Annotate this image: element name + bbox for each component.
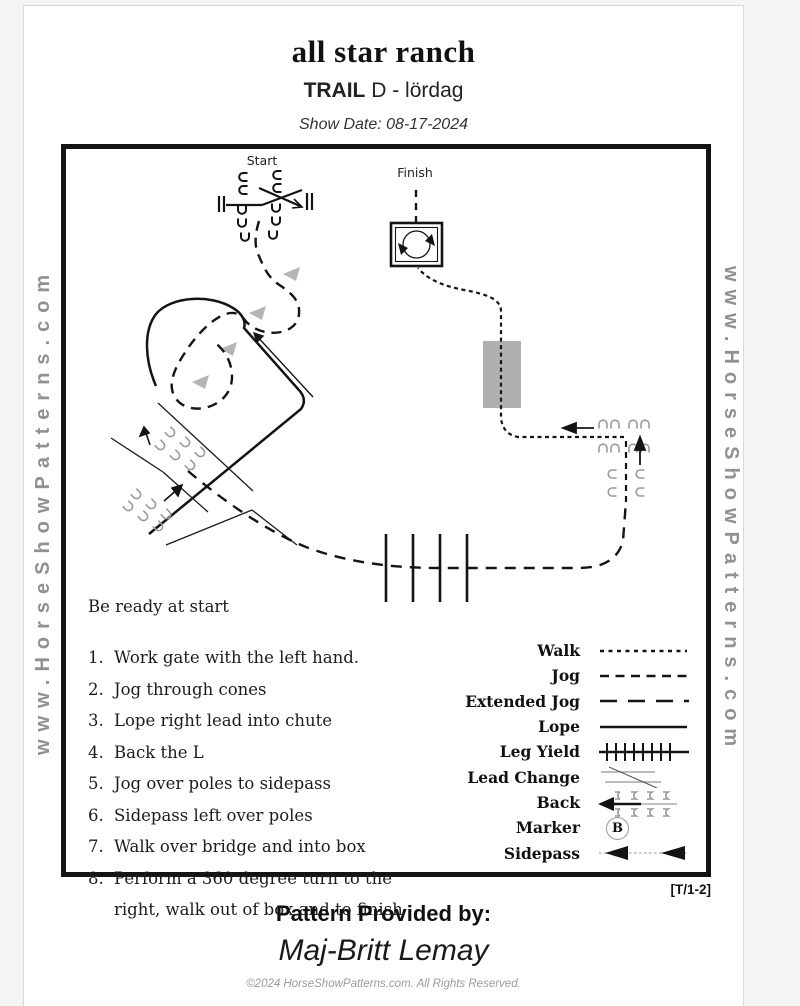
provided-by-label: Pattern Provided by: bbox=[24, 901, 743, 927]
event-subtitle: TRAIL D - lördag bbox=[24, 79, 743, 103]
event-detail: D - lördag bbox=[371, 79, 463, 102]
instruction-item: 2. Jog through cones bbox=[88, 674, 438, 706]
instruction-item: 1. Work gate with the left hand. bbox=[88, 642, 438, 674]
pattern-sheet: all star ranch TRAIL D - lördag Show Dat… bbox=[23, 5, 744, 1006]
lope-line-icon bbox=[597, 716, 692, 738]
marker-icon: B bbox=[597, 817, 692, 839]
legend-row-marker: Marker B bbox=[432, 815, 692, 840]
instruction-item: 4. Back the L bbox=[88, 737, 438, 769]
instruction-item: 7. Walk over bridge and into box bbox=[88, 831, 438, 863]
walk-line-icon bbox=[597, 640, 692, 662]
instructions-intro: Be ready at start bbox=[88, 597, 438, 616]
turn-box-obstacle bbox=[391, 223, 442, 266]
instruction-item: 5. Jog over poles to sidepass bbox=[88, 768, 438, 800]
l-back-hoofprints bbox=[123, 427, 207, 533]
instructions: Be ready at start 1. Work gate with the … bbox=[88, 597, 438, 926]
sidepass-icon bbox=[597, 842, 692, 864]
sidepass-left-arrow bbox=[563, 423, 594, 433]
show-date: Show Date: 08-17-2024 bbox=[24, 116, 743, 134]
extended-jog-line-icon bbox=[597, 690, 692, 712]
legend-row-leg-yield: Leg Yield bbox=[432, 739, 692, 764]
leg-yield-icon bbox=[597, 741, 692, 763]
l-back-obstacle bbox=[111, 403, 297, 545]
sidepass-hoofprints bbox=[599, 420, 649, 496]
jog-line-icon bbox=[597, 665, 692, 687]
instruction-item: 6. Sidepass left over poles bbox=[88, 800, 438, 832]
watermark-right: www.HorseShowPatterns.com bbox=[716, 144, 746, 877]
instruction-item: 3. Lope right lead into chute bbox=[88, 705, 438, 737]
lope-line bbox=[147, 299, 304, 534]
marker-letter: B bbox=[612, 821, 623, 836]
legend-row-extended-jog: Extended Jog bbox=[432, 689, 692, 714]
gate-obstacle bbox=[219, 188, 312, 212]
legend-row-sidepass: Sidepass bbox=[432, 840, 692, 865]
back-direction-arrows bbox=[140, 427, 182, 501]
back-icon bbox=[597, 791, 692, 813]
provider-name: Maj-Britt Lemay bbox=[24, 934, 743, 968]
cone-markers bbox=[192, 267, 300, 389]
legend-row-lead-change: Lead Change bbox=[432, 764, 692, 789]
event-type: TRAIL bbox=[304, 79, 366, 102]
legend: Walk Jog Extended Jog Lope bbox=[432, 638, 692, 866]
copyright-notice: ©2024 HorseShowPatterns.com. All Rights … bbox=[24, 978, 743, 990]
jog-over-poles-line bbox=[188, 471, 626, 568]
jog-serpentine-line bbox=[172, 221, 299, 409]
legend-row-lope: Lope bbox=[432, 714, 692, 739]
legend-row-jog: Jog bbox=[432, 663, 692, 688]
course-diagram-box: Start Finish bbox=[61, 144, 711, 877]
chute-direction-arrow bbox=[254, 333, 313, 397]
lead-change-icon bbox=[597, 766, 692, 788]
legend-row-walk: Walk bbox=[432, 638, 692, 663]
start-label: Start bbox=[247, 153, 278, 168]
legend-row-back: Back bbox=[432, 790, 692, 815]
watermark-left: www.HorseShowPatterns.com bbox=[28, 144, 58, 877]
finish-label: Finish bbox=[397, 165, 433, 180]
page-title: all star ranch bbox=[24, 34, 743, 70]
pattern-ref: [T/1-2] bbox=[61, 882, 711, 897]
